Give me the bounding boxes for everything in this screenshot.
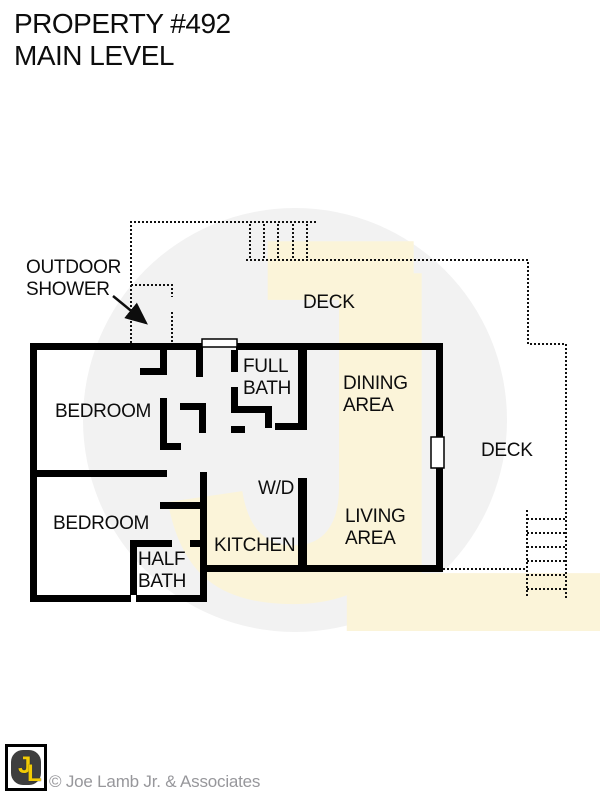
wd-label: W/D bbox=[258, 478, 294, 500]
deck-door bbox=[431, 437, 444, 468]
outdoor-shower-line1: OUTDOOR bbox=[26, 257, 121, 279]
living-area-label: LIVING AREA bbox=[345, 506, 406, 550]
property-title-line: PROPERTY #492 bbox=[14, 8, 231, 40]
bedroom-top-label: BEDROOM bbox=[55, 401, 151, 423]
full-bath-line1: FULL bbox=[243, 356, 291, 378]
dining-line2: AREA bbox=[343, 395, 408, 417]
living-line2: AREA bbox=[345, 528, 406, 550]
deck-right-label: DECK bbox=[481, 440, 533, 462]
bedroom-bottom-label: BEDROOM bbox=[53, 513, 149, 535]
outdoor-shower-label: OUTDOOR SHOWER bbox=[26, 257, 121, 301]
company-logo: J L bbox=[5, 744, 47, 791]
page-title: PROPERTY #492 MAIN LEVEL bbox=[14, 8, 231, 72]
kitchen-label: KITCHEN bbox=[214, 535, 295, 557]
dining-line1: DINING bbox=[343, 373, 408, 395]
half-bath-line2: BATH bbox=[138, 571, 186, 593]
outdoor-shower-enclosure bbox=[131, 285, 172, 343]
full-bath-label: FULL BATH bbox=[243, 356, 291, 400]
floorplan-drawing bbox=[0, 0, 600, 800]
floorplan-page: J L PROPERTY #492 MAIN LEVEL bbox=[0, 0, 600, 800]
dining-area-label: DINING AREA bbox=[343, 373, 408, 417]
top-stairs bbox=[250, 224, 307, 259]
deck-top-label: DECK bbox=[303, 292, 355, 314]
logo-oval: J L bbox=[11, 750, 41, 785]
copyright-text: © Joe Lamb Jr. & Associates bbox=[49, 772, 260, 792]
front-door bbox=[202, 339, 237, 347]
logo-letter-l: L bbox=[27, 762, 42, 786]
outdoor-shower-line2: SHOWER bbox=[26, 279, 121, 301]
living-line1: LIVING bbox=[345, 506, 406, 528]
half-bath-line1: HALF bbox=[138, 549, 186, 571]
right-stairs bbox=[527, 510, 566, 598]
level-title-line: MAIN LEVEL bbox=[14, 40, 231, 72]
half-bath-label: HALF BATH bbox=[138, 549, 186, 593]
full-bath-line2: BATH bbox=[243, 378, 291, 400]
